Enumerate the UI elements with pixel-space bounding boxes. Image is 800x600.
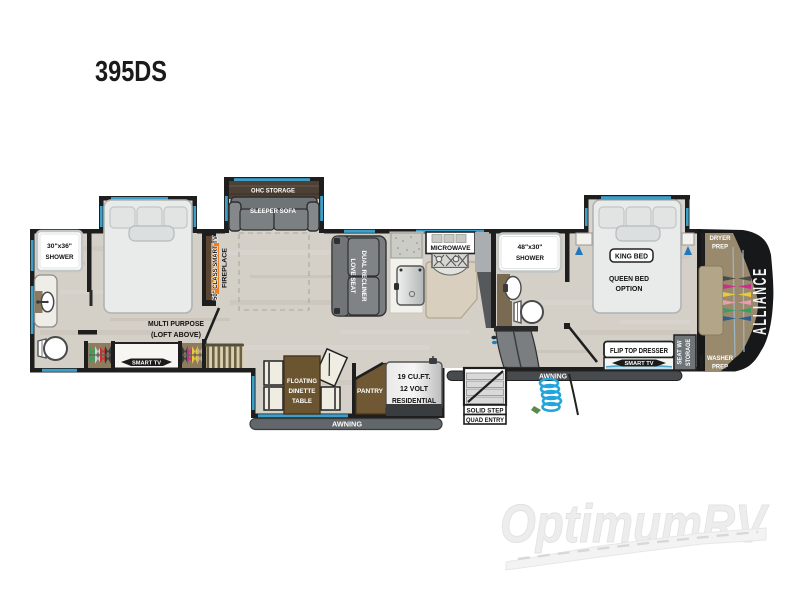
svg-text:AWNING: AWNING: [332, 422, 363, 429]
svg-text:RESIDENTIAL: RESIDENTIAL: [392, 398, 437, 405]
svg-text:MICROWAVE: MICROWAVE: [431, 245, 471, 252]
svg-text:ALLIANCE: ALLIANCE: [750, 267, 771, 335]
svg-text:PANTRY: PANTRY: [357, 388, 384, 395]
svg-text:SLEEPER SOFA: SLEEPER SOFA: [250, 208, 296, 215]
svg-text:395DS: 395DS: [95, 56, 167, 88]
svg-text:FIREPLACE: FIREPLACE: [222, 248, 229, 288]
svg-text:KING BED: KING BED: [615, 254, 648, 261]
svg-text:19 CU.FT.: 19 CU.FT.: [398, 374, 431, 381]
svg-text:SHOWER: SHOWER: [46, 254, 74, 261]
svg-text:LOVE SEAT: LOVE SEAT: [349, 259, 356, 294]
svg-text:30"x36": 30"x36": [47, 243, 72, 250]
svg-text:DUAL RECLINER: DUAL RECLINER: [360, 251, 367, 302]
svg-text:SHOWER: SHOWER: [516, 255, 544, 262]
svg-text:QUEEN BED: QUEEN BED: [609, 274, 649, 283]
svg-text:OPTION: OPTION: [616, 284, 643, 293]
svg-text:MULTI PURPOSE: MULTI PURPOSE: [148, 321, 204, 328]
svg-text:SMART TV: SMART TV: [625, 361, 654, 367]
svg-text:TABLE: TABLE: [292, 398, 313, 405]
svg-text:PREP: PREP: [712, 364, 729, 371]
svg-text:STORAGE: STORAGE: [686, 339, 692, 366]
svg-text:WASHER: WASHER: [707, 355, 733, 362]
svg-text:48"x30": 48"x30": [518, 244, 543, 251]
svg-text:FLOATING: FLOATING: [287, 378, 317, 385]
svg-text:12 VOLT: 12 VOLT: [400, 386, 429, 393]
svg-text:PREP: PREP: [712, 244, 729, 251]
svg-text:SOLID STEP: SOLID STEP: [467, 408, 505, 415]
svg-text:FLIP TOP DRESSER: FLIP TOP DRESSER: [610, 348, 668, 355]
svg-text:OHC STORAGE: OHC STORAGE: [251, 188, 295, 195]
svg-text:(LOFT ABOVE): (LOFT ABOVE): [151, 332, 201, 339]
svg-text:DINETTE: DINETTE: [289, 388, 317, 395]
svg-text:QUAD ENTRY: QUAD ENTRY: [466, 417, 505, 424]
svg-text:DRYER: DRYER: [710, 235, 731, 242]
svg-text:50" CLASS SMART TV: 50" CLASS SMART TV: [212, 235, 219, 300]
svg-text:SEAT W/: SEAT W/: [678, 340, 684, 364]
svg-text:SMART TV: SMART TV: [132, 361, 161, 367]
